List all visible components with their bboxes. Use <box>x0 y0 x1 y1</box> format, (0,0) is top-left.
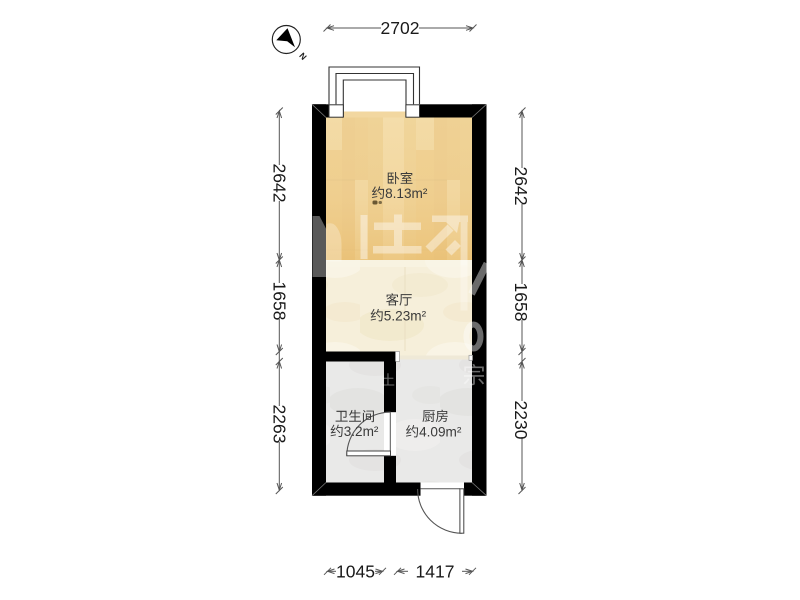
svg-text:2642: 2642 <box>511 167 531 206</box>
svg-text:5.23m²: 5.23m² <box>384 308 427 323</box>
svg-text:2702: 2702 <box>381 18 420 38</box>
svg-text:1658: 1658 <box>269 282 289 321</box>
svg-text:2263: 2263 <box>269 405 289 444</box>
svg-text:1045: 1045 <box>336 561 375 581</box>
svg-text:2642: 2642 <box>269 164 289 203</box>
svg-text:1417: 1417 <box>416 561 455 581</box>
svg-text:1658: 1658 <box>511 283 531 322</box>
svg-text:8.13m²: 8.13m² <box>385 186 428 201</box>
svg-text:4.09m²: 4.09m² <box>419 424 462 439</box>
svg-text:3.2m²: 3.2m² <box>344 424 379 439</box>
svg-text:2230: 2230 <box>511 401 531 440</box>
